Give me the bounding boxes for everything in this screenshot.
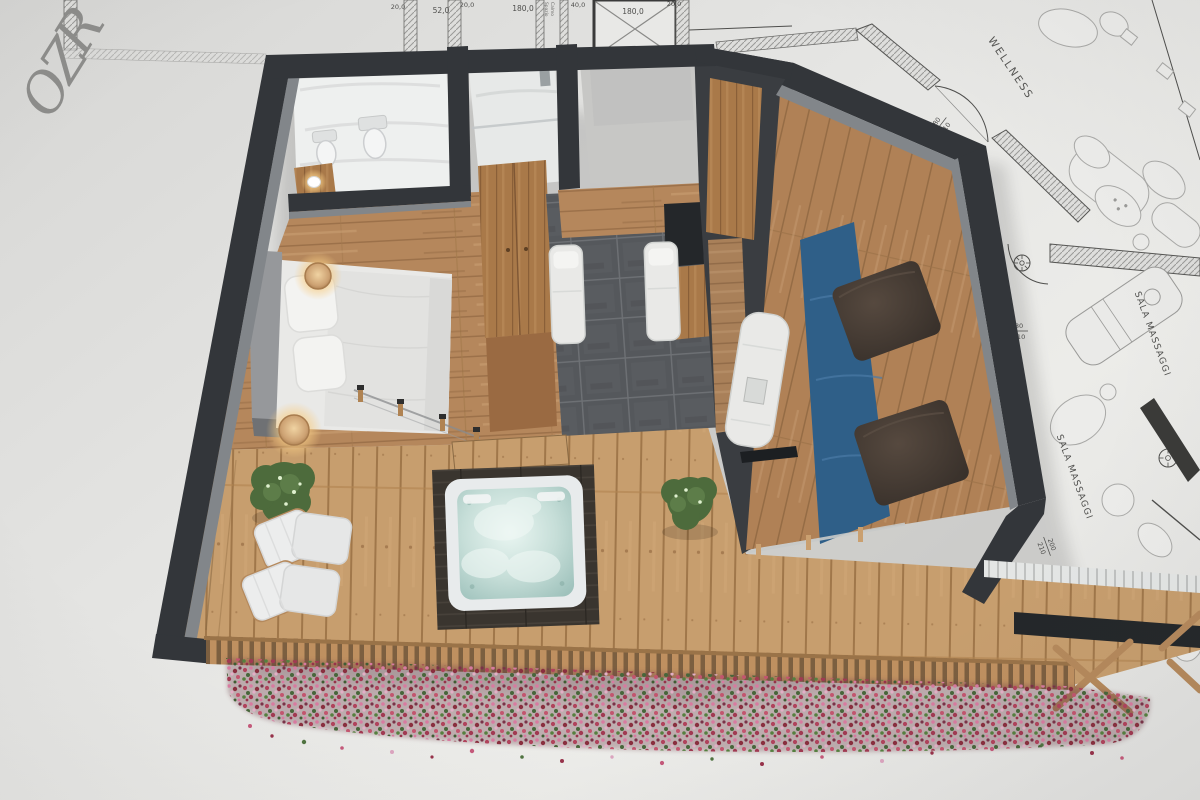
floorplan-screenshot: 180,0 20,0 52,0 20,0 180,0 40,0 20,0 Spa… [0, 0, 1200, 800]
vignette-overlay [0, 0, 1200, 800]
floorplan-render: 180,0 20,0 52,0 20,0 180,0 40,0 20,0 Spa… [0, 0, 1200, 800]
